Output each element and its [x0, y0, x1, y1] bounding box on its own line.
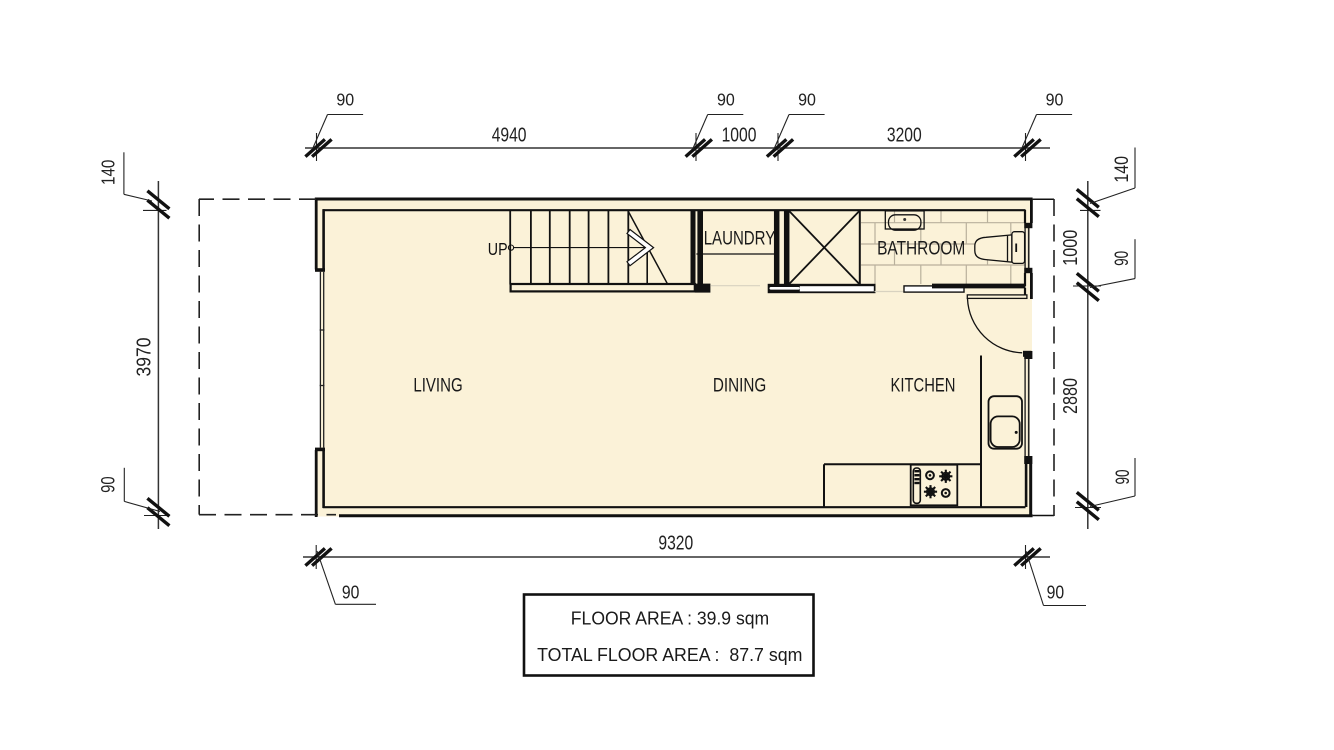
svg-text:LAUNDRY: LAUNDRY	[704, 229, 776, 250]
svg-text:90: 90	[1046, 90, 1064, 110]
svg-text:9320: 9320	[658, 532, 693, 555]
svg-text:90: 90	[798, 90, 816, 110]
svg-text:90: 90	[336, 90, 354, 110]
svg-text:90: 90	[717, 90, 735, 110]
svg-text:FLOOR AREA : 39.9 sqm: FLOOR AREA : 39.9 sqm	[571, 609, 769, 629]
svg-text:3970: 3970	[133, 338, 156, 377]
svg-text:1000: 1000	[722, 124, 757, 147]
svg-text:DINING: DINING	[713, 375, 766, 396]
svg-text:4940: 4940	[492, 124, 527, 147]
svg-text:90: 90	[1112, 251, 1133, 266]
svg-text:140: 140	[1111, 156, 1133, 183]
svg-text:BATHROOM: BATHROOM	[877, 239, 965, 260]
svg-text:2880: 2880	[1059, 378, 1082, 414]
svg-text:3200: 3200	[887, 124, 922, 147]
svg-text:KITCHEN: KITCHEN	[891, 375, 956, 396]
svg-text:90: 90	[1047, 582, 1065, 602]
svg-text:1000: 1000	[1059, 230, 1082, 266]
svg-text:140: 140	[98, 160, 119, 185]
svg-text:TOTAL FLOOR AREA : 87.7 sqm: TOTAL FLOOR AREA : 87.7 sqm	[537, 645, 802, 665]
svg-text:90: 90	[1113, 470, 1134, 485]
svg-text:LIVING: LIVING	[413, 375, 462, 396]
svg-text:UP: UP	[488, 239, 508, 259]
svg-text:90: 90	[342, 582, 360, 602]
svg-text:90: 90	[99, 476, 120, 493]
